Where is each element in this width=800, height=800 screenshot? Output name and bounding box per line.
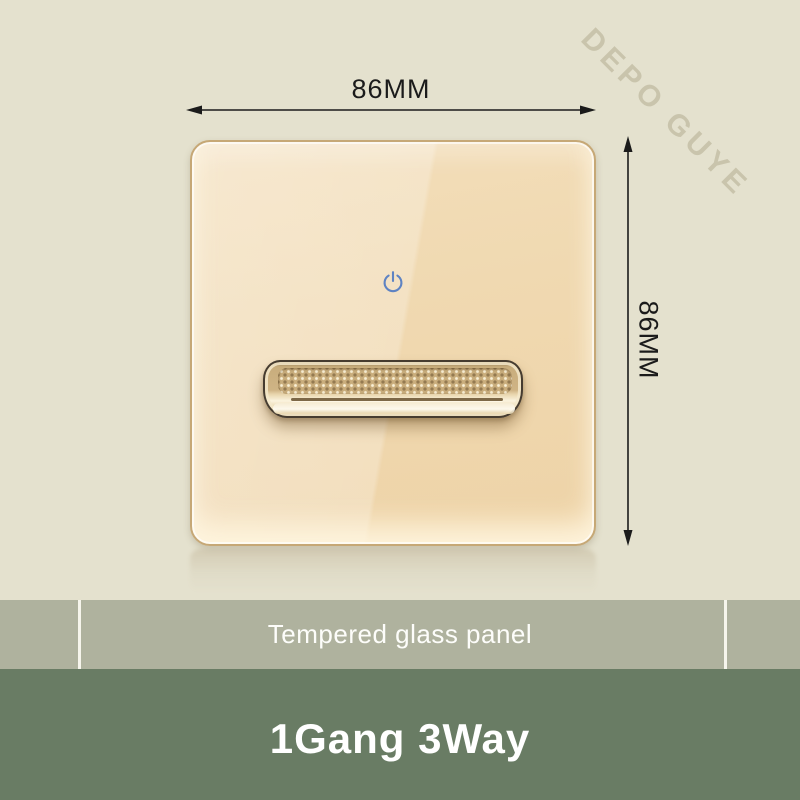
rocker-highlight [273,403,515,414]
rocker-switch [263,360,523,418]
caption-bar: Tempered glass panel [0,600,800,669]
width-dimension-arrow [186,101,596,119]
height-dimension-label: 86MM [633,300,664,379]
power-icon [381,270,405,294]
caption-label: Tempered glass panel [268,619,532,650]
product-title: 1Gang 3Way [270,707,531,763]
caption-divider-left [78,600,81,669]
product-image: DEPO GUYE 86MM 86MM Tempered glass panel… [0,0,800,800]
watermark: DEPO GUYE [574,22,756,204]
panel-reflection [190,549,596,593]
rocker-groove [291,398,503,401]
title-bar: 1Gang 3Way [0,669,800,800]
glass-panel [190,140,596,546]
caption-divider-right [724,600,727,669]
rocker-knurl-texture [278,368,512,394]
